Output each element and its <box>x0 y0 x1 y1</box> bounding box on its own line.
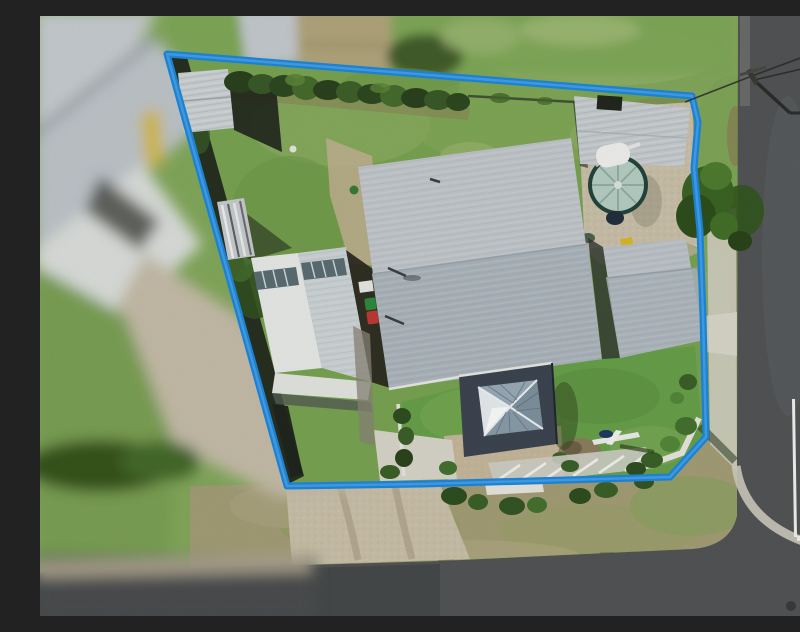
aerial-property-photo <box>40 16 800 616</box>
photo-grain <box>40 16 800 616</box>
